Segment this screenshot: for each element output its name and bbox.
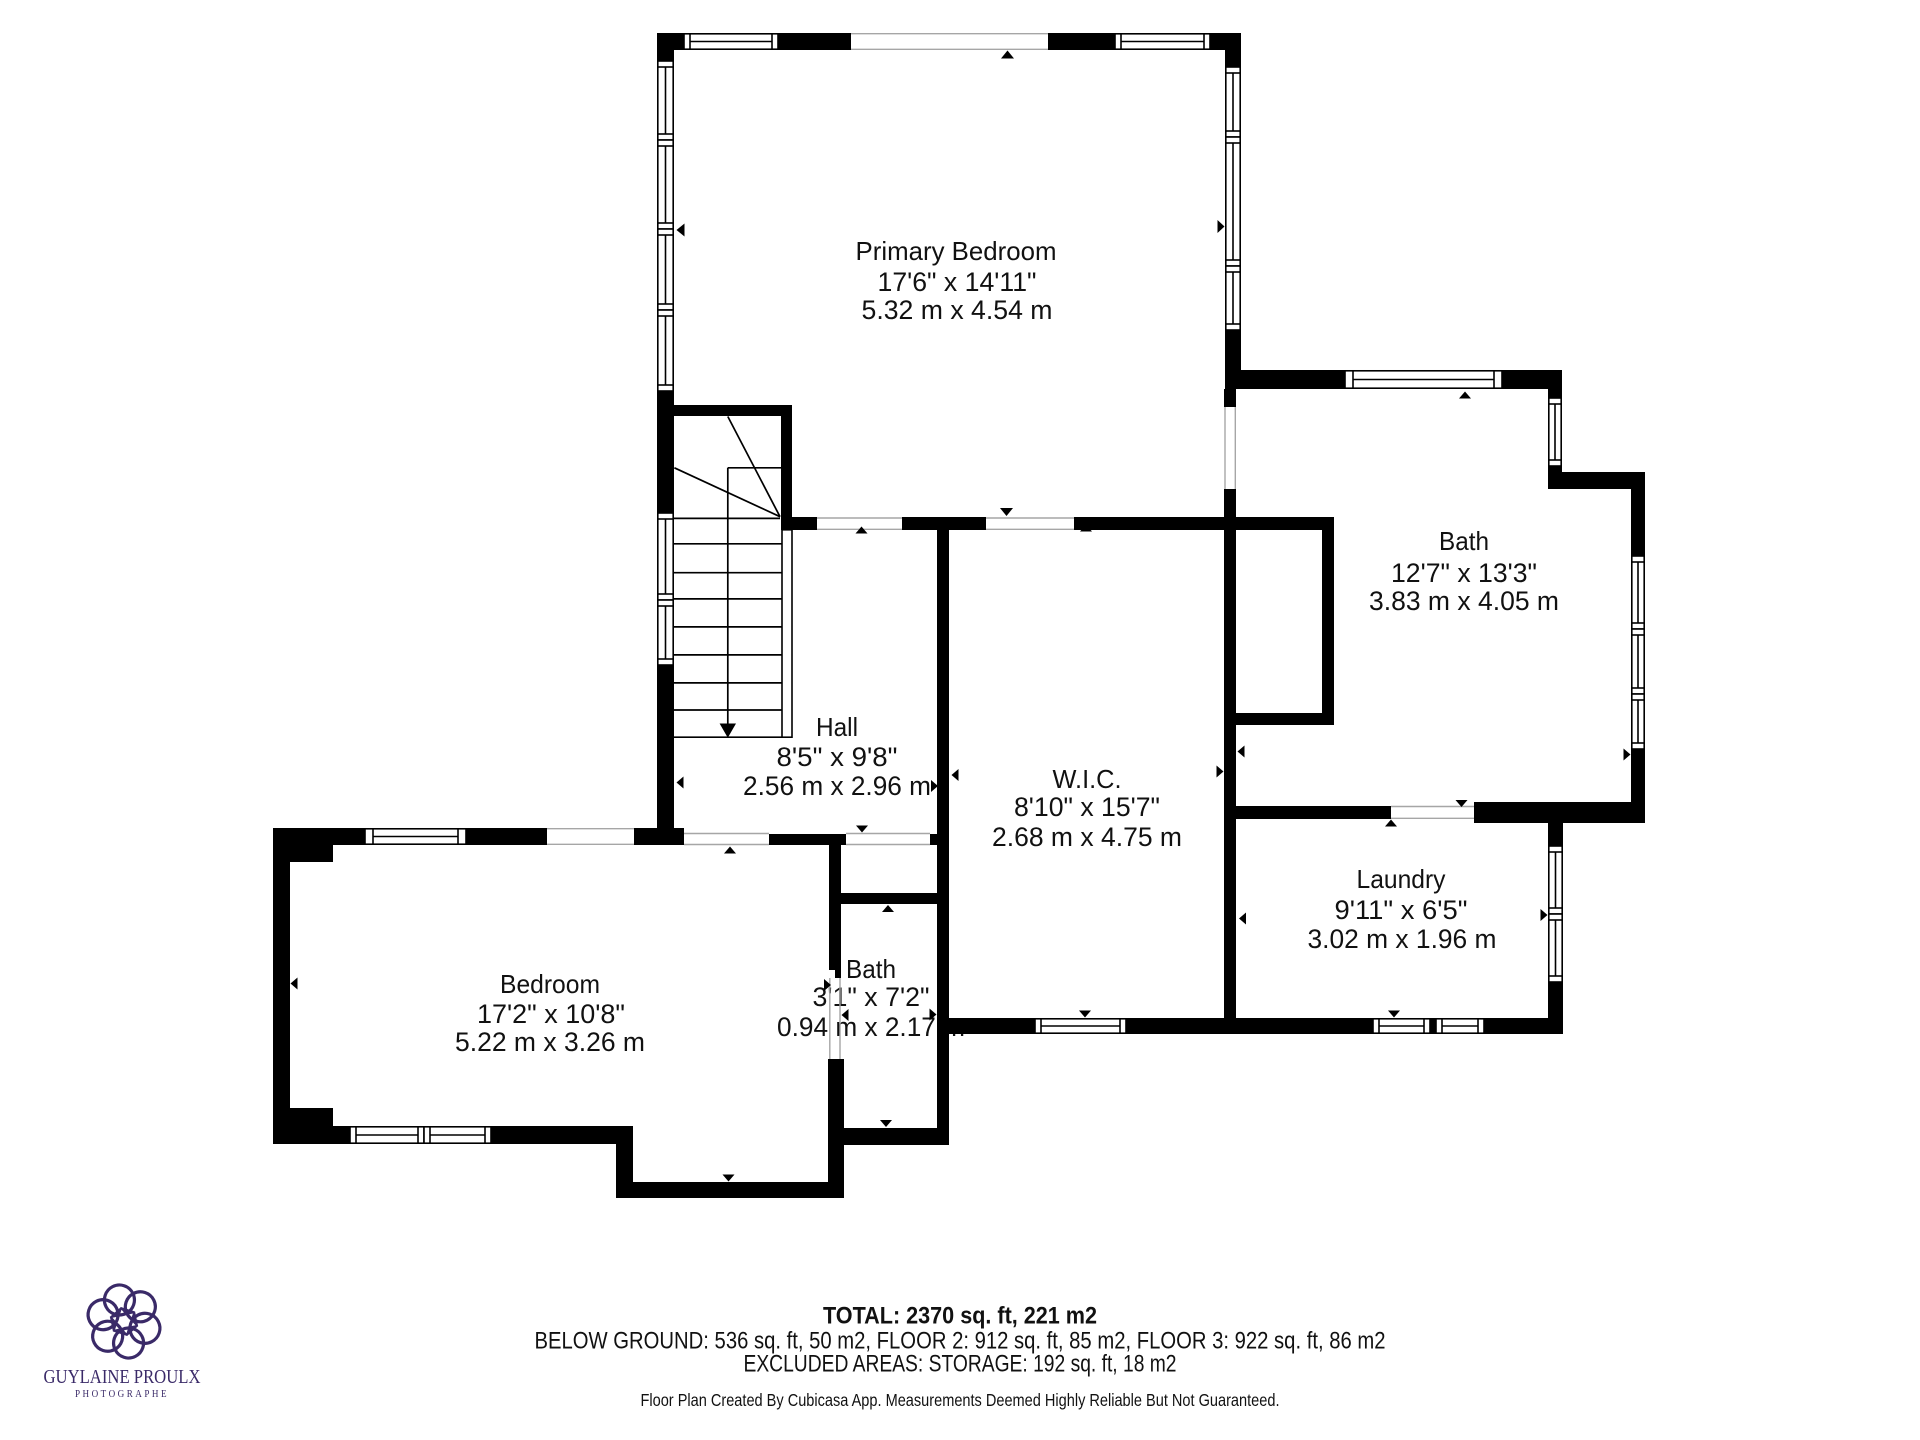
svg-text:17'2" x 10'8": 17'2" x 10'8" (477, 999, 625, 1029)
svg-text:9'11" x 6'5": 9'11" x 6'5" (1335, 895, 1468, 925)
svg-text:Floor Plan Created By Cubicasa: Floor Plan Created By Cubicasa App. Meas… (641, 1390, 1280, 1410)
svg-text:8'10" x 15'7": 8'10" x 15'7" (1014, 792, 1160, 822)
svg-text:TOTAL: 2370 sq. ft, 221 m2: TOTAL: 2370 sq. ft, 221 m2 (823, 1303, 1097, 1330)
svg-text:5.32 m x 4.54 m: 5.32 m x 4.54 m (862, 295, 1053, 325)
svg-text:2.68 m x 4.75 m: 2.68 m x 4.75 m (992, 822, 1182, 852)
svg-text:3.02 m x 1.96 m: 3.02 m x 1.96 m (1308, 924, 1497, 954)
svg-text:W.I.C.: W.I.C. (1053, 764, 1122, 794)
svg-text:Bath: Bath (846, 954, 896, 984)
svg-text:17'6" x 14'11": 17'6" x 14'11" (878, 267, 1037, 297)
svg-text:Hall: Hall (816, 712, 858, 742)
svg-text:Primary Bedroom: Primary Bedroom (856, 236, 1057, 266)
svg-text:12'7" x 13'3": 12'7" x 13'3" (1391, 558, 1537, 588)
svg-text:Bath: Bath (1439, 526, 1489, 556)
svg-text:2.56 m x 2.96 m: 2.56 m x 2.96 m (743, 771, 931, 801)
svg-text:PHOTOGRAPHE: PHOTOGRAPHE (75, 1388, 169, 1400)
svg-text:8'5" x 9'8": 8'5" x 9'8" (777, 742, 898, 772)
svg-text:3.83 m x 4.05 m: 3.83 m x 4.05 m (1369, 586, 1559, 616)
svg-text:5.22 m x 3.26 m: 5.22 m x 3.26 m (455, 1027, 645, 1057)
svg-text:Laundry: Laundry (1357, 864, 1446, 894)
svg-text:GUYLAINE PROULX: GUYLAINE PROULX (44, 1366, 201, 1388)
svg-text:0.94 m x 2.17 m: 0.94 m x 2.17 m (777, 1012, 965, 1042)
svg-text:Bedroom: Bedroom (500, 969, 600, 999)
svg-text:EXCLUDED AREAS: STORAGE: 192 s: EXCLUDED AREAS: STORAGE: 192 sq. ft, 18 … (744, 1351, 1177, 1378)
